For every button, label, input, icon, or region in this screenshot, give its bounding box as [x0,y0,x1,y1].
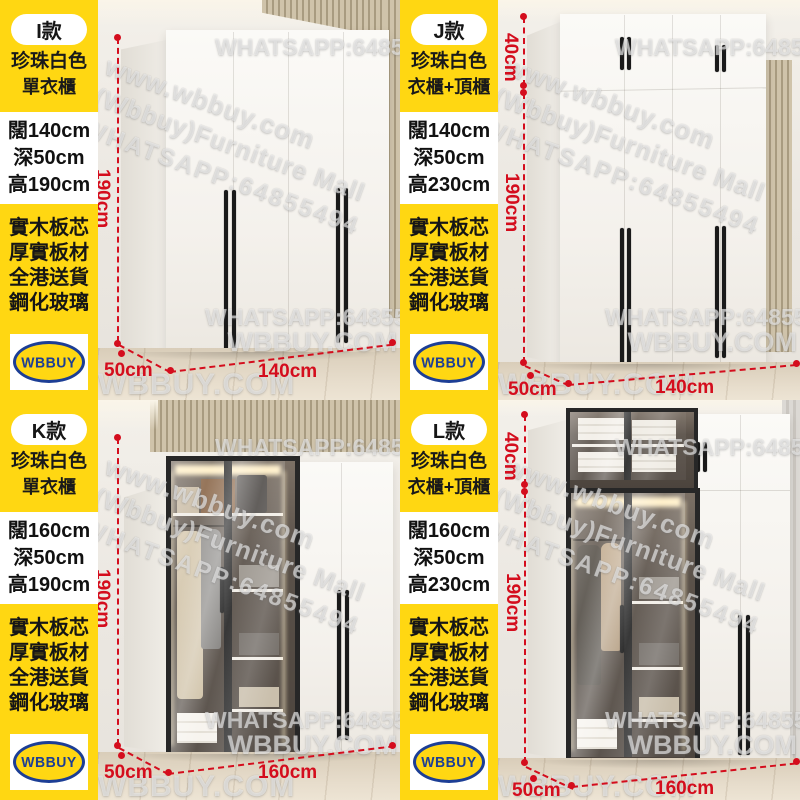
dim-dot [793,758,800,765]
model-block: K款 珍珠白色 單衣櫃 [0,400,98,512]
dim-dot [521,411,528,418]
brand-logo-ellipse: WBBUY [413,341,485,383]
spec-width: 闊140cm [8,118,90,145]
spec-block: 闊160cm 深50cm 高190cm [0,512,98,604]
feature-item: 實木板芯 [409,216,489,241]
watermark-whatsapp: WHATSAPP:64855494 [205,305,397,329]
type-label: 衣櫃+頂櫃 [408,75,491,99]
top-dimension-line [524,415,526,485]
dim-dot [521,481,528,488]
watermark-whatsapp: WHATSAPP:64855494 [605,305,797,329]
spec-depth: 深50cm [13,145,84,172]
height-dimension-label: 190cm [500,173,522,221]
watermark-site: WBBUY.COM [205,732,397,758]
type-label: 單衣櫃 [22,75,76,99]
spec-height: 高230cm [408,572,490,599]
model-badge: L款 [411,414,487,445]
product-panel-i: WHATSAPP:64855494 www.wbbuy.com (Wbbuy)F… [0,0,400,400]
brand-logo-text: WBBUY [21,754,76,771]
product-panel-j: WHATSAPP:64855494 www.wbbuy.com (Wbbuy)F… [400,0,800,400]
feature-item: 全港送貨 [409,266,489,291]
info-sidebar: J款 珍珠白色 衣櫃+頂櫃 闊140cm 深50cm 高230cm 實木板芯 厚… [400,0,498,400]
spec-depth: 深50cm [413,545,484,572]
watermark-whatsapp: WHATSAPP:64855494 [215,34,400,61]
color-label: 珍珠白色 [411,49,487,75]
top-dimension-label: 40cm [499,33,521,73]
watermark-stack: WHATSAPP:64855494 WBBUY.COM [605,708,797,758]
color-label: 珍珠白色 [11,49,87,75]
dim-dot [520,82,527,89]
watermark-stack: WHATSAPP:64855494 WBBUY.COM [605,305,797,355]
top-dimension-label: 40cm [499,432,521,472]
color-label: 珍珠白色 [11,449,87,475]
ceiling-light [98,400,158,430]
spec-height: 高190cm [8,172,90,199]
spec-width: 闊160cm [408,518,490,545]
brand-logo-text: WBBUY [21,354,76,371]
brand-logo-ellipse: WBBUY [13,341,85,383]
spec-height: 高190cm [8,572,90,599]
watermark-site: WBBUY.COM [605,732,797,758]
dim-dot [527,372,534,379]
feature-item: 鋼化玻璃 [9,691,89,716]
height-dimension-line [117,38,119,342]
dim-dot [389,339,396,346]
dim-dot [521,488,528,495]
top-dimension-line [523,17,525,86]
product-panel-l: WHATSAPP:64855494 www.wbbuy.com (Wbbuy)F… [400,400,800,800]
depth-dimension-label: 50cm [104,762,153,784]
width-dimension-label: 160cm [655,778,714,800]
dim-dot [118,752,125,759]
watermark-site: WBBUY.COM [205,329,397,355]
type-label: 衣櫃+頂櫃 [408,475,491,499]
product-panel-k: WHATSAPP:64855494 www.wbbuy.com (Wbbuy)F… [0,400,400,800]
spec-depth: 深50cm [413,145,484,172]
spec-block: 闊160cm 深50cm 高230cm [400,512,498,604]
brand-logo: WBBUY [410,734,488,790]
dim-dot [520,89,527,96]
depth-dimension-label: 50cm [104,360,153,382]
feature-item: 鋼化玻璃 [9,291,89,316]
spec-block: 闊140cm 深50cm 高190cm [0,112,98,204]
model-block: J款 珍珠白色 衣櫃+頂櫃 [400,0,498,112]
model-badge: J款 [411,14,487,45]
watermark-whatsapp: WHATSAPP:64855494 [205,708,397,732]
spec-depth: 深50cm [13,545,84,572]
model-badge: K款 [11,414,87,445]
watermark-site: WBBUY.COM [605,329,797,355]
feature-block: 實木板芯 厚實板材 全港送貨 鋼化玻璃 WBBUY [0,204,98,400]
dim-dot [114,434,121,441]
dim-dot [520,13,527,20]
watermark-whatsapp: WHATSAPP:64855494 [615,434,800,461]
promo-image: WHATSAPP:64855494 www.wbbuy.com (Wbbuy)F… [0,0,800,800]
watermark-whatsapp: WHATSAPP:64855494 [605,708,797,732]
info-sidebar: K款 珍珠白色 單衣櫃 闊160cm 深50cm 高190cm 實木板芯 厚實板… [0,400,98,800]
height-dimension-line [523,93,525,363]
feature-item: 厚實板材 [9,641,89,666]
feature-block: 實木板芯 厚實板材 全港送貨 鋼化玻璃 WBBUY [400,204,498,400]
feature-item: 全港送貨 [409,666,489,691]
dim-dot [118,350,125,357]
dim-dot [114,34,121,41]
model-block: I款 珍珠白色 單衣櫃 [0,0,98,112]
feature-item: 實木板芯 [9,216,89,241]
feature-item: 鋼化玻璃 [409,691,489,716]
info-sidebar: I款 珍珠白色 單衣櫃 闊140cm 深50cm 高190cm 實木板芯 厚實板… [0,0,98,400]
height-dimension-label: 190cm [501,573,523,621]
brand-logo-ellipse: WBBUY [13,741,85,783]
dim-dot [389,742,396,749]
spec-height: 高230cm [408,172,490,199]
feature-item: 全港送貨 [9,666,89,691]
width-dimension-label: 140cm [655,377,714,399]
type-label: 單衣櫃 [22,475,76,499]
brand-logo: WBBUY [10,334,88,390]
height-dimension-line [117,438,119,745]
watermark-stack: WHATSAPP:64855494 WBBUY.COM [205,708,397,758]
brand-logo: WBBUY [410,334,488,390]
feature-item: 全港送貨 [9,266,89,291]
feature-item: 厚實板材 [409,241,489,266]
feature-block: 實木板芯 厚實板材 全港送貨 鋼化玻璃 WBBUY [0,604,98,800]
width-dimension-label: 160cm [258,762,317,784]
feature-item: 實木板芯 [9,616,89,641]
brand-logo: WBBUY [10,734,88,790]
feature-item: 厚實板材 [409,641,489,666]
dim-dot [521,759,528,766]
dim-dot [793,360,800,367]
spec-block: 闊140cm 深50cm 高230cm [400,112,498,204]
brand-logo-ellipse: WBBUY [413,741,485,783]
width-dimension-label: 140cm [258,361,317,383]
feature-block: 實木板芯 厚實板材 全港送貨 鋼化玻璃 WBBUY [400,604,498,800]
brand-logo-text: WBBUY [421,354,476,371]
depth-dimension-label: 50cm [512,780,561,800]
spec-width: 闊160cm [8,518,90,545]
feature-item: 實木板芯 [409,616,489,641]
watermark-whatsapp: WHATSAPP:64855494 [615,34,800,61]
color-label: 珍珠白色 [411,449,487,475]
brand-logo-text: WBBUY [421,754,476,771]
feature-item: 鋼化玻璃 [409,291,489,316]
model-block: L款 珍珠白色 衣櫃+頂櫃 [400,400,498,512]
info-sidebar: L款 珍珠白色 衣櫃+頂櫃 闊160cm 深50cm 高230cm 實木板芯 厚… [400,400,498,800]
watermark-whatsapp: WHATSAPP:64855494 [215,434,400,461]
height-dimension-line [524,492,526,763]
spec-width: 闊140cm [408,118,490,145]
model-badge: I款 [11,14,87,45]
feature-item: 厚實板材 [9,241,89,266]
depth-dimension-label: 50cm [508,379,557,400]
